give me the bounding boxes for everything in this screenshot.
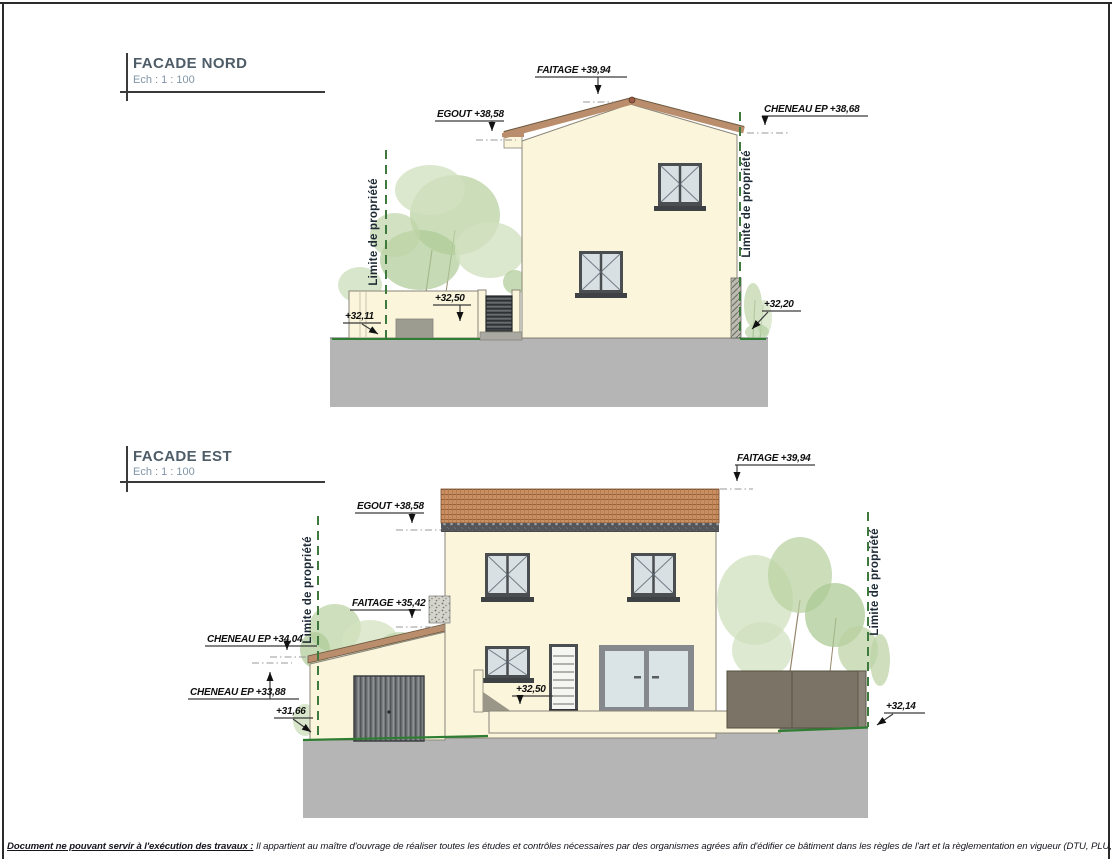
- limite-propriete-label-left: Limite de propriété: [302, 536, 314, 643]
- level-label-32-11: +32,11: [345, 311, 375, 322]
- level-label-32-14: +32,14: [886, 701, 916, 712]
- claustra-panel: [429, 596, 450, 623]
- fence: [727, 671, 866, 728]
- window-sill: [627, 597, 680, 602]
- gate-post-left: [478, 290, 486, 338]
- window-est-lower: [481, 646, 534, 683]
- leader-32-14: [877, 714, 893, 725]
- wall-ledge: [396, 319, 433, 338]
- plan-sheet: FACADE NORD Ech : 1 : 100 FACADE EST Ech…: [0, 0, 1112, 859]
- window-nord-upper: [654, 163, 706, 211]
- bay-handle: [652, 676, 659, 679]
- footer-disclaimer-lead: Document ne pouvant servir à l'exécution…: [7, 841, 253, 852]
- limite-propriete-label-right: Limite de propriété: [869, 528, 881, 635]
- level-label-32-20: +32,20: [764, 299, 794, 310]
- roof-tiles: [441, 489, 719, 523]
- house-wall-nord: [522, 104, 737, 338]
- bay-handle: [634, 676, 641, 679]
- gate-step: [480, 332, 522, 340]
- elevation-drawings: Limite de propriété Limite de propriété …: [0, 0, 1112, 859]
- faitage-label: FAITAGE +39,94: [537, 65, 611, 76]
- faitage-main-label: FAITAGE +39,94: [737, 453, 811, 464]
- level-label-31-66: +31,66: [276, 706, 306, 717]
- louver-door: [549, 644, 578, 712]
- faitage-annex-label: FAITAGE +35,42: [352, 598, 426, 609]
- ground-nord: [330, 338, 768, 407]
- footer-disclaimer-rest: Il appartient au maître d'ouvrage de réa…: [253, 841, 1112, 852]
- cheneau-high-label: CHENEAU EP +34,04: [207, 634, 303, 645]
- garage-door-handle: [387, 710, 390, 713]
- window-sill: [654, 206, 706, 211]
- cheneau-low-label: CHENEAU EP +33,88: [190, 687, 286, 698]
- trees-est-right: [717, 537, 890, 686]
- window-est-upper-left: [481, 553, 534, 602]
- window-sill: [481, 597, 534, 602]
- limite-propriete-label-right: Limite de propriété: [741, 150, 753, 257]
- window-sill: [481, 678, 534, 683]
- gate: [486, 296, 512, 331]
- garage-door: [354, 676, 424, 741]
- annotation-lines-nord: [535, 0, 1112, 77]
- roof-eave-band: [441, 523, 719, 531]
- sliding-bay-window: [597, 645, 696, 715]
- footer-disclaimer: Document ne pouvant servir à l'exécution…: [7, 841, 1107, 852]
- level-label-32-50: +32,50: [516, 684, 546, 695]
- facade-est-drawing: Limite de propriété Limite de propriété …: [188, 453, 925, 818]
- egout-label: EGOUT +38,58: [437, 109, 504, 120]
- level-label-32-50: +32,50: [435, 293, 465, 304]
- gate-post-right: [512, 290, 520, 338]
- fence-post: [858, 671, 866, 728]
- window-nord-lower: [575, 251, 627, 298]
- cheneau-label: CHENEAU EP +38,68: [764, 104, 860, 115]
- facade-nord-drawing: Limite de propriété Limite de propriété …: [330, 0, 1112, 407]
- window-est-upper-right: [627, 553, 680, 602]
- stair-pillar: [474, 670, 483, 712]
- limite-propriete-label-left: Limite de propriété: [368, 178, 380, 285]
- window-sill: [575, 293, 627, 298]
- roof-ridge-cap: [629, 97, 635, 103]
- egout-label: EGOUT +38,58: [357, 501, 424, 512]
